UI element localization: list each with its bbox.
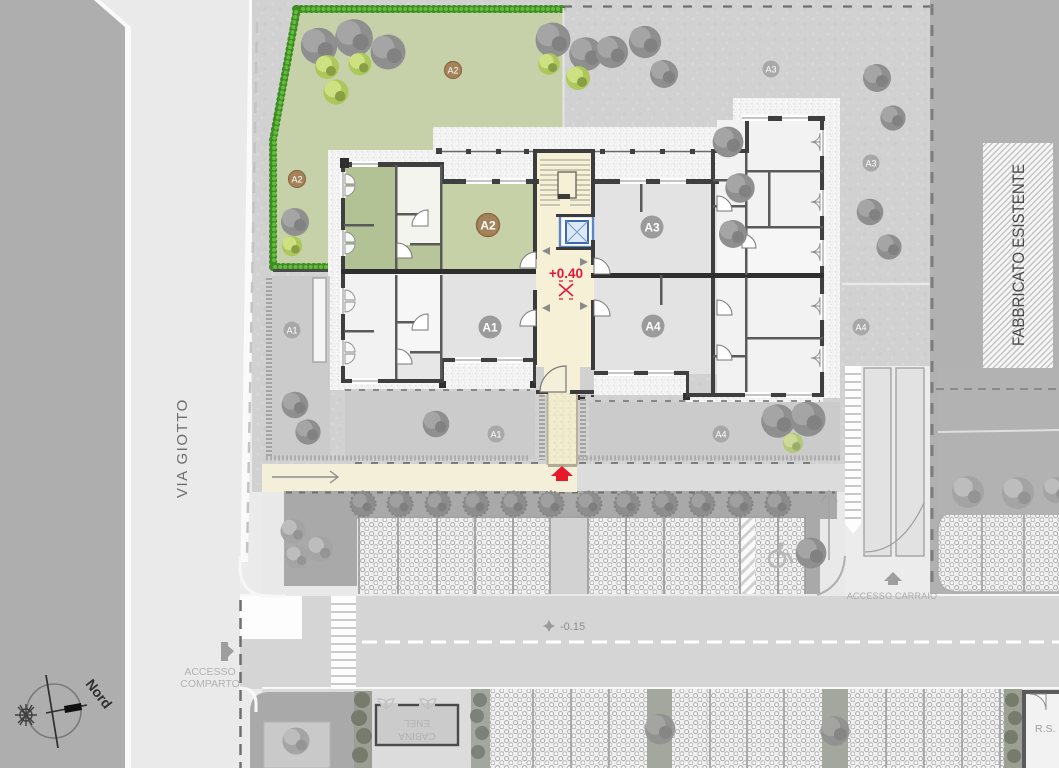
- svg-text:A3: A3: [865, 159, 876, 169]
- svg-text:COMPARTO: COMPARTO: [180, 678, 240, 690]
- svg-text:-0.15: -0.15: [560, 621, 585, 633]
- svg-text:A1: A1: [490, 430, 501, 440]
- svg-text:CABINA: CABINA: [398, 730, 436, 741]
- svg-text:A2: A2: [480, 219, 496, 233]
- svg-text:A4: A4: [715, 430, 726, 440]
- svg-text:FABBRICATO ESISTENTE: FABBRICATO ESISTENTE: [1010, 164, 1028, 346]
- svg-text:+0.40: +0.40: [549, 266, 583, 281]
- svg-text:A1: A1: [482, 321, 498, 335]
- svg-text:ENEL: ENEL: [404, 717, 431, 728]
- svg-text:A2: A2: [447, 66, 458, 76]
- svg-text:A4: A4: [855, 323, 866, 333]
- svg-text:A3: A3: [765, 65, 776, 75]
- svg-text:A4: A4: [645, 320, 661, 334]
- svg-text:ACCESSO: ACCESSO: [184, 666, 235, 678]
- svg-text:ACCESSO CARRAIO: ACCESSO CARRAIO: [847, 591, 938, 601]
- svg-text:A2: A2: [291, 175, 302, 185]
- svg-text:VIA GIOTTO: VIA GIOTTO: [174, 398, 191, 498]
- svg-text:A1: A1: [286, 326, 297, 336]
- svg-text:A3: A3: [644, 221, 660, 235]
- svg-text:R.S.: R.S.: [1035, 723, 1055, 735]
